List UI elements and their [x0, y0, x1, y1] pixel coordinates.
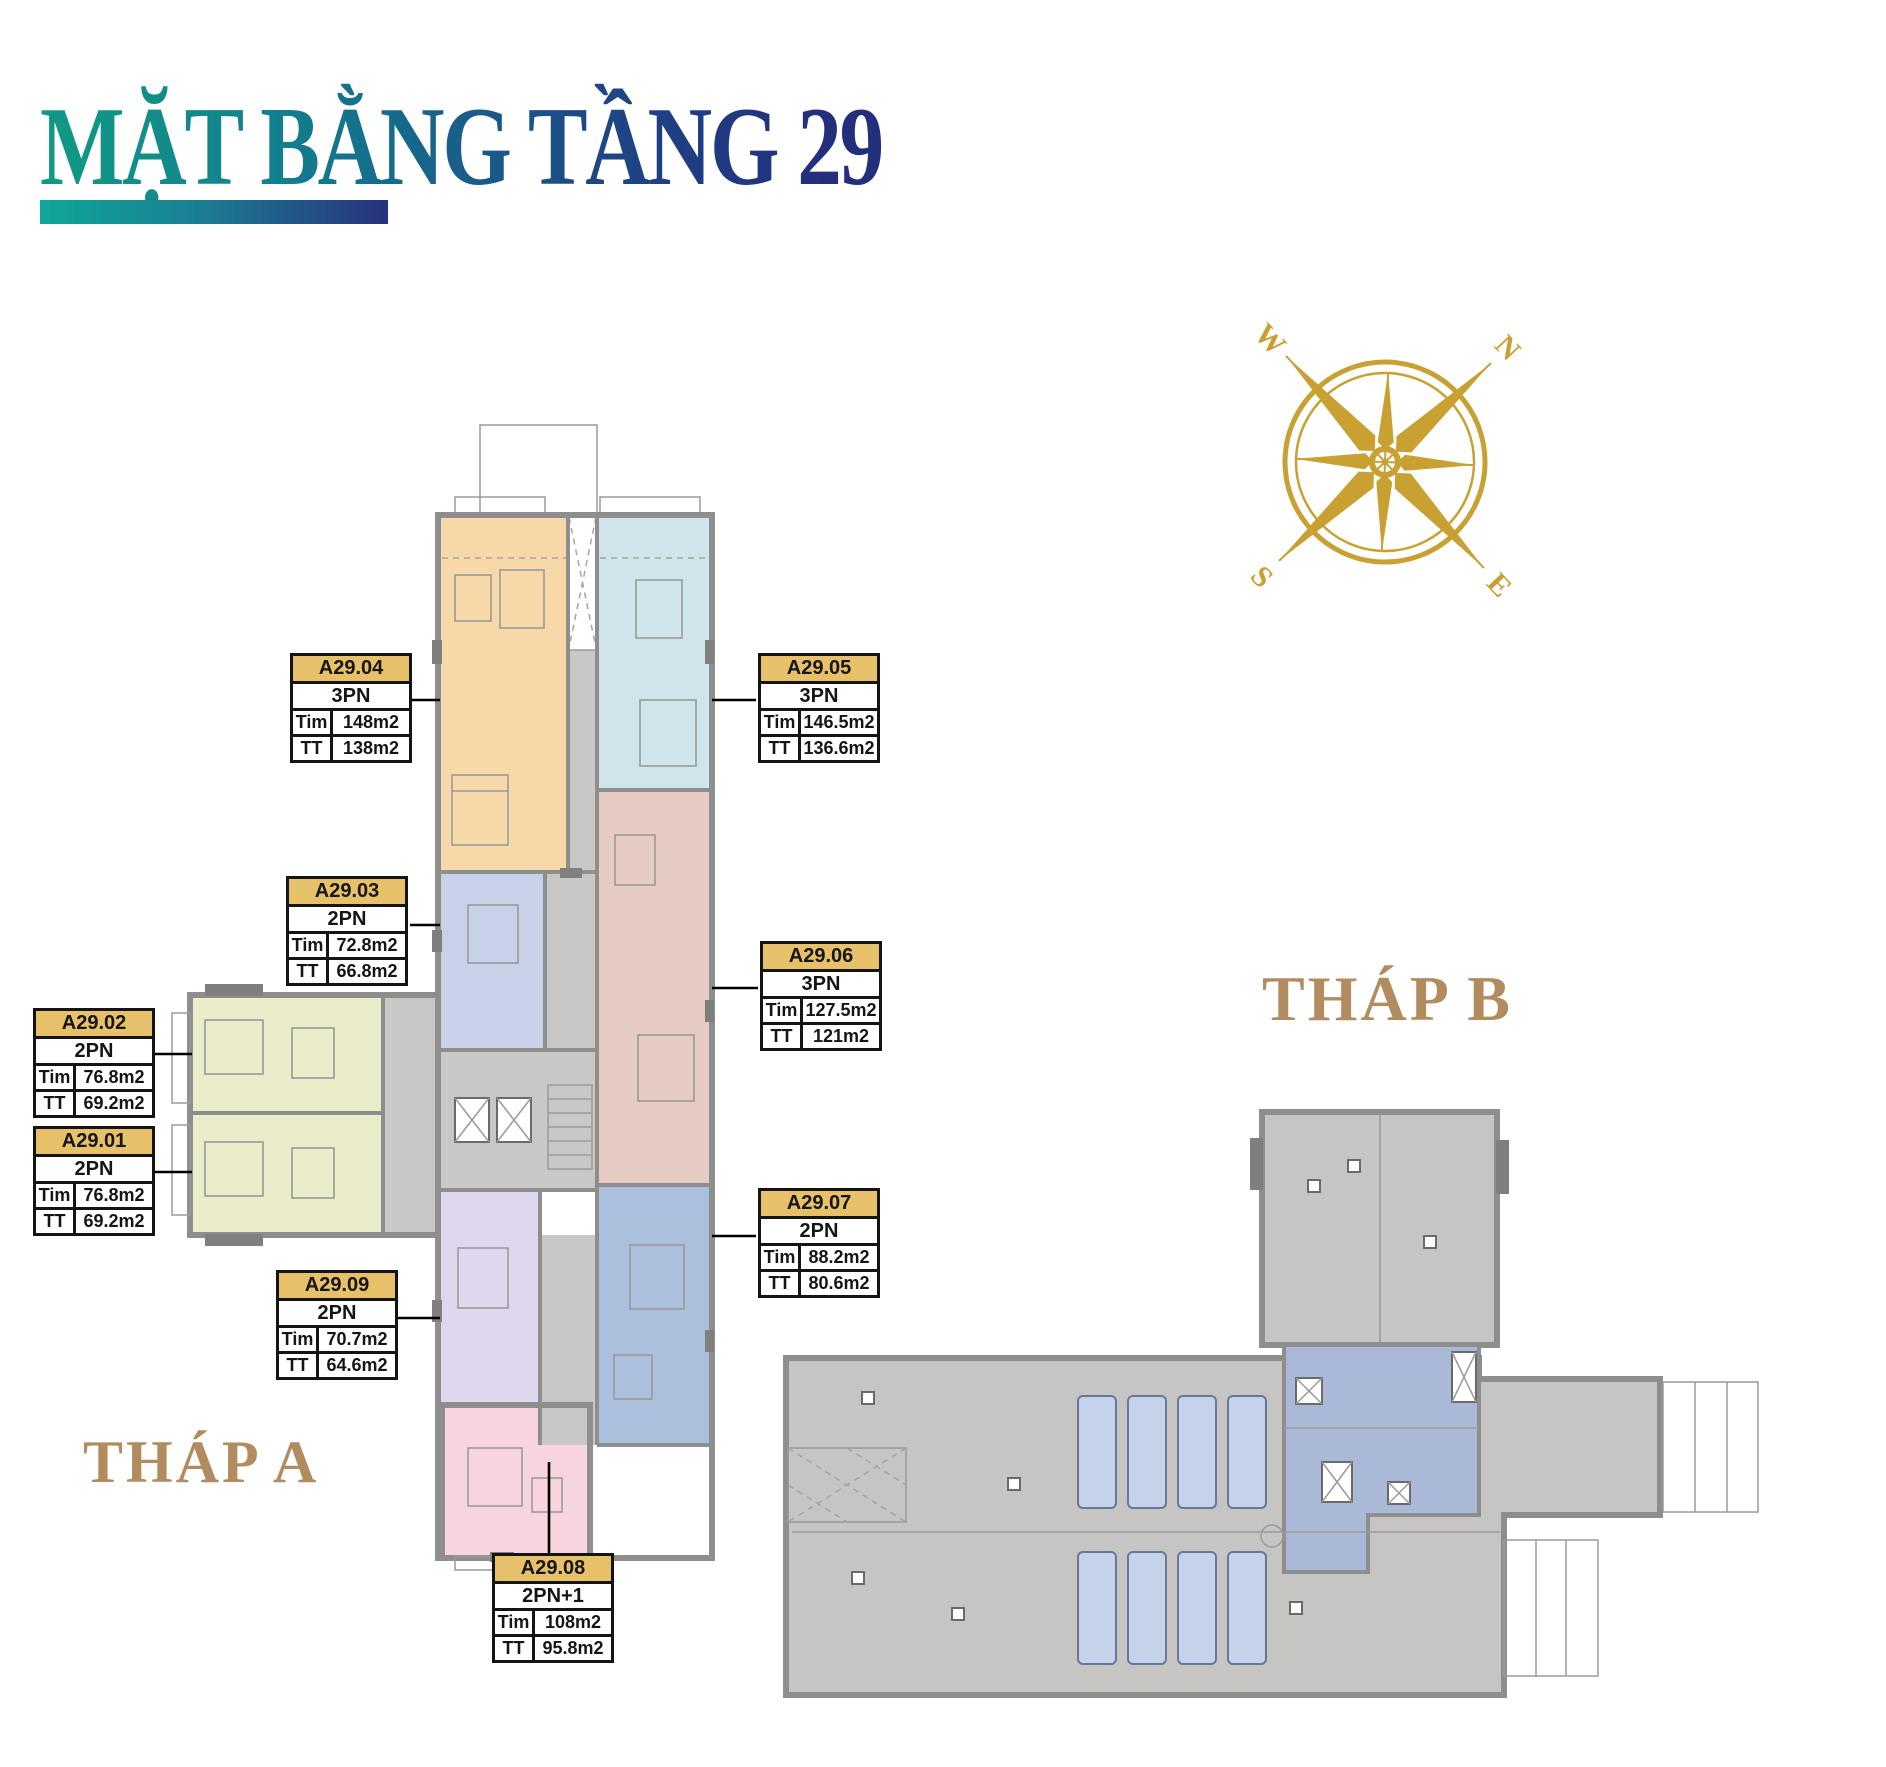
tim-label: Tim	[279, 1328, 319, 1351]
tim-value: 76.8m2	[76, 1184, 152, 1207]
unit-a29-07-area	[597, 1185, 712, 1445]
tt-value: 95.8m2	[535, 1637, 611, 1660]
unit-callout-a29-01: A29.01 2PN Tim76.8m2 TT69.2m2	[33, 1126, 155, 1236]
unit-a29-09-area	[438, 1190, 540, 1405]
wing-tab-bottom	[205, 1234, 263, 1246]
tim-label: Tim	[761, 711, 801, 734]
unit-callout-a29-07: A29.07 2PN Tim88.2m2 TT80.6m2	[758, 1188, 880, 1298]
tim-value: 146.5m2	[801, 711, 877, 734]
tt-value: 121m2	[803, 1025, 879, 1048]
unit-a29-03-area	[438, 872, 545, 1050]
unit-callout-a29-05: A29.05 3PN Tim146.5m2 TT136.6m2	[758, 653, 880, 763]
unit-id: A29.06	[763, 944, 879, 969]
tim-label: Tim	[289, 934, 329, 957]
tim-value: 88.2m2	[801, 1246, 877, 1269]
tt-value: 69.2m2	[76, 1092, 152, 1115]
tim-label: Tim	[36, 1184, 76, 1207]
floor-plan-canvas: N E S W	[0, 0, 1886, 1767]
tower-b-slab	[786, 1358, 1660, 1695]
tower-b-label: THÁP B	[1262, 962, 1513, 1036]
tower-b-right-balcony	[1663, 1382, 1758, 1512]
unit-id: A29.05	[761, 656, 877, 681]
page-title: MẶT BẰNG TẦNG 29	[40, 77, 1096, 217]
tt-label: TT	[279, 1354, 319, 1377]
tim-value: 76.8m2	[76, 1066, 152, 1089]
unit-a29-04-area	[438, 515, 568, 872]
unit-callout-a29-08: A29.08 2PN+1 Tim108m2 TT95.8m2	[492, 1553, 614, 1663]
tt-label: TT	[495, 1637, 535, 1660]
unit-id: A29.01	[36, 1129, 152, 1154]
tim-value: 127.5m2	[803, 999, 879, 1022]
unit-type: 2PN	[36, 1154, 152, 1181]
wing-tab-top	[205, 984, 263, 996]
tim-value: 148m2	[333, 711, 409, 734]
tt-label: TT	[36, 1092, 76, 1115]
tt-value: 64.6m2	[319, 1354, 395, 1377]
title-underline-bar	[40, 200, 388, 224]
compass-south-label: S	[1244, 560, 1280, 595]
unit-type: 2PN	[279, 1298, 395, 1325]
tim-label: Tim	[293, 711, 333, 734]
tower-a-lobby-west	[383, 995, 438, 1235]
tim-value: 70.7m2	[319, 1328, 395, 1351]
unit-type: 2PN	[761, 1216, 877, 1243]
tim-label: Tim	[763, 999, 803, 1022]
tt-label: TT	[293, 737, 333, 760]
tim-value: 72.8m2	[329, 934, 405, 957]
tt-label: TT	[761, 1272, 801, 1295]
unit-type: 2PN	[289, 904, 405, 931]
unit-callout-a29-06: A29.06 3PN Tim127.5m2 TT121m2	[760, 941, 882, 1051]
unit-id: A29.04	[293, 656, 409, 681]
tower-b-plan	[786, 1112, 1758, 1695]
unit-callout-a29-04: A29.04 3PN Tim148m2 TT138m2	[290, 653, 412, 763]
tt-value: 69.2m2	[76, 1210, 152, 1233]
tt-value: 138m2	[333, 737, 409, 760]
tower-a-corridor-1	[545, 872, 597, 1050]
unit-callout-a29-02: A29.02 2PN Tim76.8m2 TT69.2m2	[33, 1008, 155, 1118]
compass-icon: N E S W	[1125, 203, 1641, 719]
compass-west-label: W	[1248, 317, 1293, 361]
unit-callout-a29-03: A29.03 2PN Tim72.8m2 TT66.8m2	[286, 876, 408, 986]
compass-east-label: E	[1480, 567, 1518, 604]
unit-a29-05-area	[597, 515, 712, 790]
unit-type: 2PN+1	[495, 1581, 611, 1608]
unit-callout-a29-09: A29.09 2PN Tim70.7m2 TT64.6m2	[276, 1270, 398, 1380]
tower-a-roof-shaft	[480, 425, 597, 515]
tt-label: TT	[761, 737, 801, 760]
tt-label: TT	[289, 960, 329, 983]
tower-a-label: THÁP A	[83, 1428, 319, 1497]
tt-label: TT	[36, 1210, 76, 1233]
tim-value: 108m2	[535, 1611, 611, 1634]
floor-plan-page: N E S W MẶT BẰNG TẦNG 29 THÁP A THÁP B A…	[0, 0, 1886, 1767]
compass-north-label: N	[1488, 329, 1527, 368]
unit-type: 2PN	[36, 1036, 152, 1063]
unit-type: 3PN	[761, 681, 877, 708]
tt-label: TT	[763, 1025, 803, 1048]
tower-a-core-strip	[568, 650, 597, 872]
tt-value: 66.8m2	[329, 960, 405, 983]
tim-label: Tim	[761, 1246, 801, 1269]
tower-a-plan	[172, 425, 714, 1570]
unit-id: A29.09	[279, 1273, 395, 1298]
unit-type: 3PN	[293, 681, 409, 708]
unit-type: 3PN	[763, 969, 879, 996]
unit-id: A29.07	[761, 1191, 877, 1216]
tt-value: 80.6m2	[801, 1272, 877, 1295]
tower-a-shaft-cross	[569, 517, 596, 648]
tower-b-bottom-bay	[1504, 1540, 1598, 1676]
tt-value: 136.6m2	[801, 737, 877, 760]
tim-label: Tim	[495, 1611, 535, 1634]
unit-id: A29.03	[289, 879, 405, 904]
unit-id: A29.02	[36, 1011, 152, 1036]
unit-id: A29.08	[495, 1556, 611, 1581]
tim-label: Tim	[36, 1066, 76, 1089]
